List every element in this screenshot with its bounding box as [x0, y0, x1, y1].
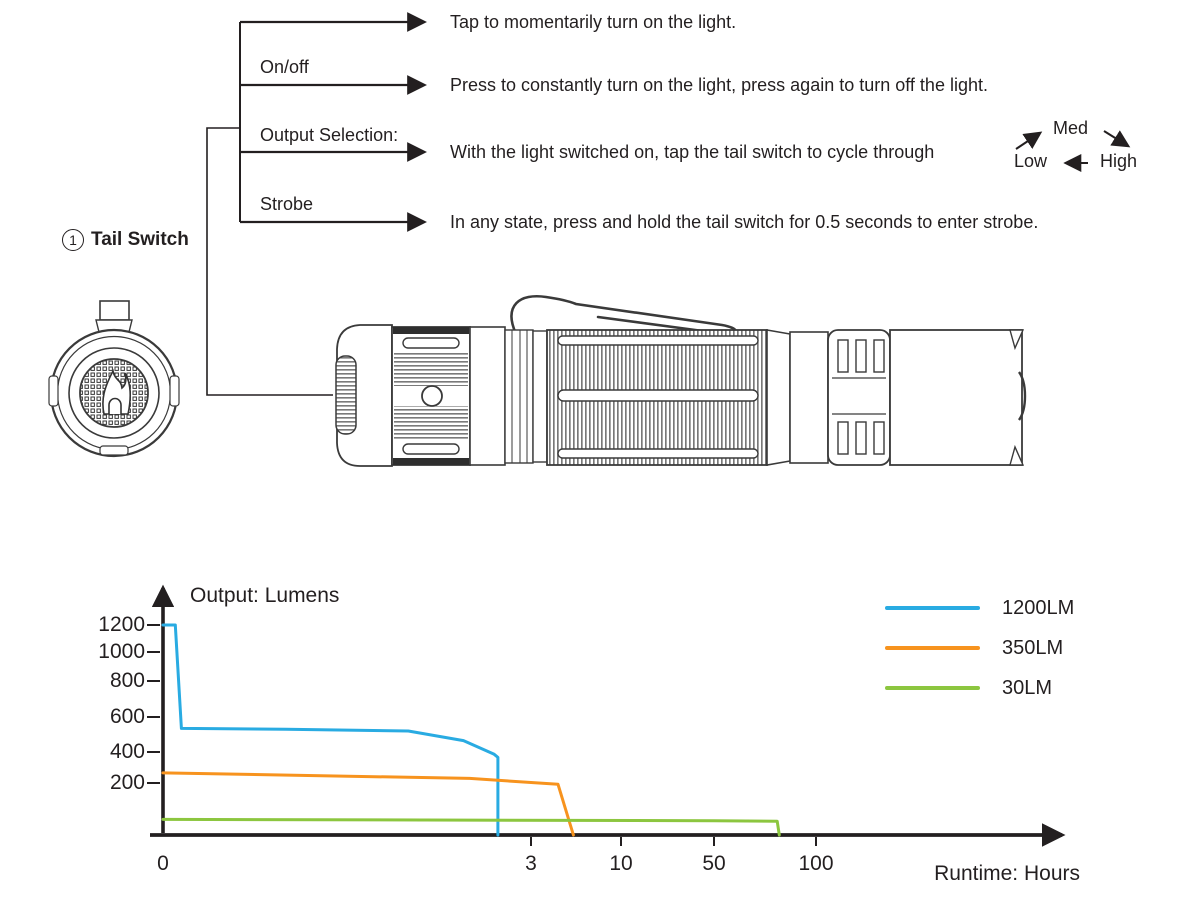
y-tick-1200: 1200	[85, 613, 145, 637]
branch-label-onoff: On/off	[260, 56, 309, 78]
x-tick-50: 50	[690, 852, 738, 876]
branch-label-output: Output Selection:	[260, 124, 398, 146]
tail-switch-button	[336, 356, 356, 434]
legend-label-30lm: 30LM	[1002, 676, 1052, 700]
x-tick-3: 3	[507, 852, 555, 876]
part-label-tail-switch: 1 Tail Switch	[62, 229, 189, 251]
y-tick-600: 600	[85, 705, 145, 729]
part-number-badge: 1	[62, 229, 84, 251]
x-tick-10: 10	[597, 852, 645, 876]
slotted-ring	[828, 330, 890, 465]
cycle-low: Low	[1014, 151, 1047, 171]
legend-swatch-30lm	[885, 686, 980, 690]
head-bezel	[890, 330, 1025, 465]
manual-page: Tap to momentarily turn on the light. Pr…	[0, 0, 1200, 900]
instruction-strobe: In any state, press and hold the tail sw…	[450, 211, 1038, 233]
y-tick-1000: 1000	[85, 640, 145, 664]
legend-swatch-1200lm	[885, 606, 980, 610]
y-tick-400: 400	[85, 740, 145, 764]
legend-label-350lm: 350LM	[1002, 636, 1063, 660]
x-axis-title: Runtime: Hours	[920, 862, 1080, 886]
cycle-med: Med	[1053, 118, 1088, 138]
y-tick-200: 200	[85, 771, 145, 795]
legend-swatch-350lm	[885, 646, 980, 650]
line-art-layer	[0, 0, 1200, 900]
part-name: Tail Switch	[91, 229, 189, 251]
chart-series	[163, 625, 779, 835]
flashlight-side-view	[336, 296, 1025, 466]
y-axis-title: Output: Lumens	[190, 584, 339, 608]
instruction-onoff: Press to constantly turn on the light, p…	[450, 74, 988, 96]
chart-legend: 1200LM 350LM 30LM	[885, 596, 1074, 700]
x-tick-100: 100	[792, 852, 840, 876]
series-line-1200lm	[163, 625, 498, 835]
finned-body	[547, 330, 767, 465]
instruction-output: With the light switched on, tap the tail…	[450, 141, 934, 163]
y-tick-800: 800	[85, 669, 145, 693]
series-line-350lm	[163, 773, 573, 835]
instruction-momentary: Tap to momentarily turn on the light.	[450, 11, 736, 33]
legend-label-1200lm: 1200LM	[1002, 596, 1074, 620]
switch-ring	[392, 327, 470, 465]
pocket-clip	[512, 296, 736, 334]
flashlight-tail-view	[49, 301, 179, 456]
cycle-high: High	[1100, 151, 1137, 171]
branch-label-strobe: Strobe	[260, 193, 313, 215]
x-tick-0: 0	[139, 852, 187, 876]
series-line-30lm	[163, 819, 779, 835]
